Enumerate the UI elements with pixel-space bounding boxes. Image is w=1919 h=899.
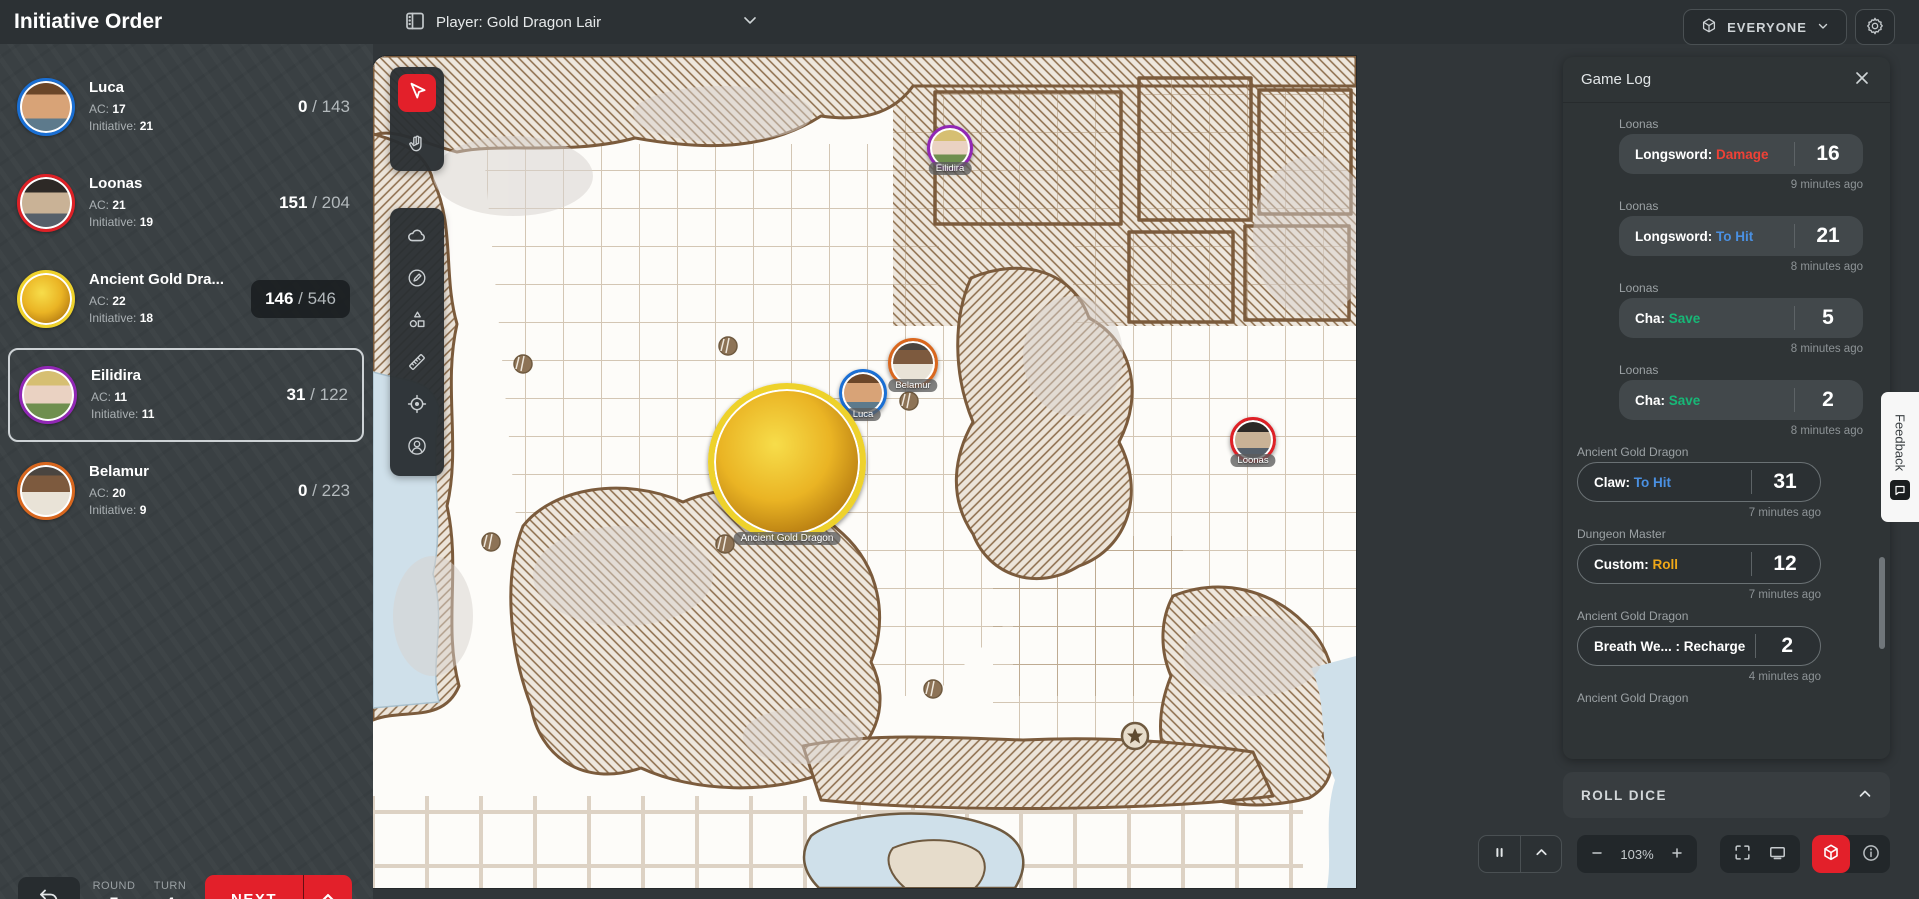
log-roll-value: 2 (1805, 388, 1851, 412)
close-game-log-button[interactable] (1848, 66, 1876, 94)
log-actor-name: Loonas (1619, 363, 1863, 377)
map-select-label: Player: Gold Dragon Lair (436, 14, 601, 31)
pause-button[interactable] (1479, 836, 1520, 872)
initiative-info: BelamurAC: 20Initiative: 9 (89, 463, 298, 519)
log-roll-pill[interactable]: Breath We... : Recharge2 (1577, 626, 1821, 666)
map-toolbar-secondary (390, 208, 444, 476)
log-timestamp: 8 minutes ago (1619, 424, 1863, 438)
ac-stat: AC: 21 (89, 197, 279, 214)
next-options-button[interactable] (303, 875, 352, 899)
person-circle-icon (406, 435, 428, 460)
ac-stat: AC: 22 (89, 293, 251, 310)
round-label: ROUND (84, 880, 144, 892)
log-roll-pill[interactable]: Cha: Save5 (1619, 298, 1863, 338)
divider (1794, 224, 1795, 248)
second-screen-button[interactable] (1765, 841, 1791, 867)
game-log-panel: Game Log LoonasLongsword: Damage169 minu… (1563, 57, 1890, 759)
round-counter: ROUND 5 (84, 880, 144, 899)
info-icon (1861, 843, 1881, 866)
ac-stat: AC: 20 (89, 485, 298, 502)
roll-dice-expander[interactable]: ROLL DICE (1563, 772, 1890, 818)
battle-map[interactable]: EilidiraBelamurLucaAncient Gold DragonLo… (373, 56, 1356, 888)
star-marker (1122, 723, 1148, 749)
log-roll-label: Cha: Save (1635, 393, 1784, 408)
log-roll-label: Cha: Save (1635, 311, 1784, 326)
divider (1755, 634, 1756, 658)
game-log-title: Game Log (1581, 71, 1651, 88)
hp-value: 146 / 546 (251, 280, 350, 318)
fullscreen-icon (1733, 843, 1752, 865)
initiative-info: LoonasAC: 21Initiative: 19 (89, 175, 279, 231)
log-roll-label: Custom: Roll (1594, 557, 1741, 572)
log-roll-value: 12 (1762, 552, 1808, 576)
feedback-chat-icon (1890, 480, 1910, 500)
initiative-info: EilidiraAC: 11Initiative: 11 (91, 367, 287, 423)
playback-controls (1478, 835, 1562, 873)
log-timestamp: 9 minutes ago (1619, 178, 1863, 192)
divider (1751, 552, 1752, 576)
hp-value: 31 / 122 (287, 385, 348, 405)
log-actor-name: Loonas (1619, 281, 1863, 295)
log-entry: Dungeon MasterCustom: Roll127 minutes ag… (1577, 527, 1821, 602)
map-token-ancient-gold-dragon[interactable] (708, 383, 866, 541)
zoom-in-button[interactable] (1667, 844, 1687, 864)
undo-icon (37, 887, 61, 899)
log-entry: LoonasLongsword: Damage169 minutes ago (1619, 117, 1863, 192)
map-select-dropdown[interactable]: Player: Gold Dragon Lair (436, 6, 760, 38)
turn-counter: TURN 4 (140, 880, 200, 899)
log-actor-name: Dungeon Master (1577, 527, 1821, 541)
log-entry: LoonasCha: Save58 minutes ago (1619, 281, 1863, 356)
initiative-stat: Initiative: 9 (89, 502, 298, 519)
log-roll-label: Claw: To Hit (1594, 475, 1741, 490)
top-bar: Initiative Order Player: Gold Dragon Lai… (0, 0, 1919, 44)
minus-icon (1589, 845, 1605, 864)
tool-draw-button[interactable] (398, 260, 436, 298)
log-timestamp: 4 minutes ago (1577, 670, 1821, 684)
dice-roller-button[interactable] (1812, 835, 1850, 873)
chevron-up-icon (318, 888, 338, 899)
log-roll-pill[interactable]: Longsword: Damage16 (1619, 134, 1863, 174)
chevron-up-icon (1533, 844, 1550, 864)
log-entry: Ancient Gold DragonClaw: To Hit317 minut… (1577, 445, 1821, 520)
ruler-icon (406, 351, 428, 376)
log-roll-value: 31 (1762, 470, 1808, 494)
log-roll-value: 16 (1805, 142, 1851, 166)
tool-select-button[interactable] (398, 74, 436, 112)
cloud-icon (406, 225, 428, 250)
plus-icon (1669, 845, 1685, 864)
chevron-down-icon (1816, 19, 1830, 36)
page-title: Initiative Order (14, 0, 162, 44)
log-actor-name: Ancient Gold Dragon (1577, 691, 1821, 705)
tool-shapes-button[interactable] (398, 302, 436, 340)
hp-value: 0 / 143 (298, 97, 350, 117)
feedback-label: Feedback (1893, 414, 1908, 471)
character-name: Loonas (89, 175, 279, 192)
shapes-icon (406, 309, 428, 334)
log-roll-value: 5 (1805, 306, 1851, 330)
log-roll-pill[interactable]: Longsword: To Hit21 (1619, 216, 1863, 256)
hp-value: 151 / 204 (279, 193, 350, 213)
avatar (17, 174, 75, 232)
initiative-item[interactable]: Ancient Gold Dra...AC: 22Initiative: 181… (8, 252, 364, 346)
log-actor-name: Loonas (1619, 117, 1863, 131)
divider (1794, 306, 1795, 330)
dice-cube-icon (1821, 843, 1841, 866)
divider (1751, 470, 1752, 494)
log-actor-name: Loonas (1619, 199, 1863, 213)
initiative-stat: Initiative: 21 (89, 118, 298, 135)
initiative-item[interactable]: EilidiraAC: 11Initiative: 1131 / 122 (8, 348, 364, 442)
info-button[interactable] (1852, 835, 1890, 873)
display-controls (1720, 835, 1800, 873)
chevron-up-icon (1856, 785, 1874, 806)
pause-icon (1491, 844, 1508, 864)
journal-panel-icon (403, 9, 427, 36)
map-toolbar-primary (390, 67, 444, 171)
initiative-info: Ancient Gold Dra...AC: 22Initiative: 18 (89, 271, 251, 327)
tool-character-button[interactable] (398, 428, 436, 466)
next-turn-group: NEXT (205, 875, 352, 899)
character-name: Eilidira (91, 367, 287, 384)
close-icon (1852, 68, 1872, 91)
initiative-sidebar: LucaAC: 17Initiative: 210 / 143LoonasAC:… (0, 44, 373, 899)
game-log-scrollbar[interactable] (1879, 557, 1885, 649)
roll-dice-label: ROLL DICE (1581, 788, 1667, 803)
gear-icon (1865, 16, 1885, 39)
crosshair-icon (406, 393, 428, 418)
log-timestamp: 8 minutes ago (1619, 342, 1863, 356)
round-value: 5 (84, 894, 144, 899)
tool-pan-button[interactable] (398, 126, 436, 164)
turn-value: 4 (140, 894, 200, 899)
hp-value: 0 / 223 (298, 481, 350, 501)
tool-ping-button[interactable] (398, 386, 436, 424)
avatar (17, 270, 75, 328)
zoom-out-button[interactable] (1587, 844, 1607, 864)
character-name: Belamur (89, 463, 298, 480)
feedback-tab[interactable]: Feedback (1881, 392, 1919, 522)
undo-turn-button[interactable] (18, 877, 80, 899)
visibility-dropdown[interactable]: EVERYONE (1683, 9, 1847, 45)
initiative-stat: Initiative: 18 (89, 310, 251, 327)
divider (1794, 388, 1795, 412)
app-window: EilidiraBelamurLucaAncient Gold DragonLo… (0, 0, 1919, 899)
playback-expand-button[interactable] (1520, 836, 1561, 872)
log-roll-value: 2 (1766, 634, 1808, 658)
pen-circle-icon (406, 267, 428, 292)
log-roll-value: 21 (1805, 224, 1851, 248)
dice-controls (1812, 835, 1890, 873)
log-roll-label: Longsword: To Hit (1635, 229, 1784, 244)
log-roll-pill[interactable]: Cha: Save2 (1619, 380, 1863, 420)
cube-icon (1700, 17, 1718, 38)
cursor-icon (406, 81, 428, 106)
character-name: Luca (89, 79, 298, 96)
game-log-entries: LoonasLongsword: Damage169 minutes agoLo… (1563, 103, 1890, 759)
initiative-info: LucaAC: 17Initiative: 21 (89, 79, 298, 135)
zoom-level: 103% (1620, 847, 1653, 862)
log-roll-pill[interactable]: Claw: To Hit31 (1577, 462, 1821, 502)
initiative-item[interactable]: LoonasAC: 21Initiative: 19151 / 204 (8, 156, 364, 250)
avatar (17, 462, 75, 520)
log-actor-name: Ancient Gold Dragon (1577, 445, 1821, 459)
log-entry: Ancient Gold Dragon (1577, 691, 1821, 705)
token-label: Eilidira (929, 162, 972, 175)
log-timestamp: 7 minutes ago (1577, 588, 1821, 602)
tool-measure-button[interactable] (398, 344, 436, 382)
log-timestamp: 8 minutes ago (1619, 260, 1863, 274)
tool-fog-button[interactable] (398, 218, 436, 256)
zoom-controls: 103% (1577, 835, 1697, 873)
log-roll-pill[interactable]: Custom: Roll12 (1577, 544, 1821, 584)
token-label: Belamur (888, 379, 937, 392)
chevron-down-icon (740, 10, 760, 34)
character-name: Ancient Gold Dra... (89, 271, 251, 288)
log-entry: LoonasLongsword: To Hit218 minutes ago (1619, 199, 1863, 274)
game-log-header: Game Log (1563, 57, 1890, 103)
turn-label: TURN (140, 880, 200, 892)
token-label: Loonas (1230, 454, 1275, 467)
journal-panel-button[interactable] (396, 7, 434, 37)
log-roll-label: Longsword: Damage (1635, 147, 1784, 162)
log-entry: Ancient Gold DragonBreath We... : Rechar… (1577, 609, 1821, 684)
visibility-label: EVERYONE (1727, 20, 1807, 35)
settings-button[interactable] (1855, 9, 1895, 45)
ac-stat: AC: 11 (91, 389, 287, 406)
initiative-item[interactable]: BelamurAC: 20Initiative: 90 / 223 (8, 444, 364, 538)
avatar (17, 78, 75, 136)
avatar (19, 366, 77, 424)
divider (1794, 142, 1795, 166)
log-actor-name: Ancient Gold Dragon (1577, 609, 1821, 623)
initiative-item[interactable]: LucaAC: 17Initiative: 210 / 143 (8, 60, 364, 154)
fullscreen-button[interactable] (1729, 841, 1755, 867)
initiative-stat: Initiative: 11 (91, 406, 287, 423)
monitor-icon (1768, 843, 1787, 865)
ac-stat: AC: 17 (89, 101, 298, 118)
initiative-stat: Initiative: 19 (89, 214, 279, 231)
log-roll-label: Breath We... : Recharge (1594, 639, 1745, 654)
log-entry: LoonasCha: Save28 minutes ago (1619, 363, 1863, 438)
token-label: Ancient Gold Dragon (734, 532, 841, 545)
log-timestamp: 7 minutes ago (1577, 506, 1821, 520)
next-turn-button[interactable]: NEXT (205, 875, 303, 899)
hand-icon (406, 133, 428, 158)
